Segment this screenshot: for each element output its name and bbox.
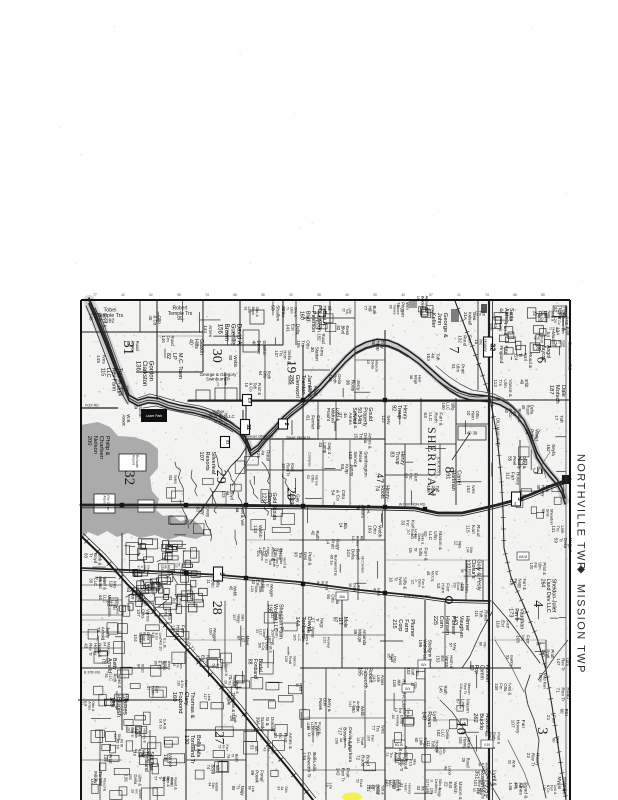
svg-text:Sauer Globe St: Sauer Globe St bbox=[247, 434, 274, 438]
svg-text:80: 80 bbox=[541, 293, 545, 297]
svg-text:VILLAGE: VILLAGE bbox=[189, 586, 193, 601]
svg-text:Beaumont Rd: Beaumont Rd bbox=[568, 342, 573, 370]
svg-text:ToftToft128: ToftToft128 bbox=[514, 783, 525, 789]
svg-text:B3 30: B3 30 bbox=[395, 743, 404, 747]
svg-text:II 30: II 30 bbox=[484, 743, 490, 747]
svg-text:DILLMAN HWY: DILLMAN HWY bbox=[496, 418, 501, 447]
svg-text:Sauer Globe N: Sauer Globe N bbox=[286, 435, 310, 439]
svg-text:52: 52 bbox=[245, 424, 251, 430]
svg-text:E 37th Rd: E 37th Rd bbox=[84, 670, 100, 674]
svg-text:Ives145: Ives145 bbox=[95, 355, 106, 365]
svg-text:2: 2 bbox=[283, 423, 289, 426]
svg-text:S.A.B.16 10: S.A.B.16 10 bbox=[158, 719, 167, 730]
svg-text:28: 28 bbox=[209, 601, 224, 615]
svg-text:Lazer Park: Lazer Park bbox=[146, 414, 163, 418]
svg-text:74: 74 bbox=[485, 293, 489, 297]
svg-text:10: 10 bbox=[453, 721, 468, 735]
svg-text:B/X: B/X bbox=[421, 663, 427, 667]
svg-text:W DIVISION RD: W DIVISION RD bbox=[399, 502, 426, 506]
svg-text:3: 3 bbox=[534, 727, 550, 735]
svg-text:Sills117: Sills117 bbox=[113, 734, 121, 741]
svg-text:31: 31 bbox=[225, 440, 230, 445]
svg-text:55: 55 bbox=[177, 293, 181, 297]
svg-text:42: 42 bbox=[121, 293, 125, 297]
svg-text:27: 27 bbox=[213, 731, 228, 745]
svg-text:43: 43 bbox=[401, 293, 405, 297]
svg-text:20: 20 bbox=[373, 293, 377, 297]
svg-text:SHERIDAN RD: SHERIDAN RD bbox=[404, 594, 430, 598]
svg-text:32: 32 bbox=[289, 293, 293, 297]
svg-text:30: 30 bbox=[209, 349, 224, 363]
svg-text:B/X: B/X bbox=[405, 687, 411, 691]
svg-text:Link117: Link117 bbox=[203, 694, 212, 701]
svg-text:74: 74 bbox=[205, 293, 209, 297]
svg-text:77: 77 bbox=[93, 293, 97, 297]
svg-text:5: 5 bbox=[531, 468, 546, 475]
svg-text:Sills144: Sills144 bbox=[465, 547, 473, 554]
svg-text:21: 21 bbox=[457, 293, 461, 297]
svg-text:45A: 45A bbox=[339, 595, 346, 599]
svg-text:47: 47 bbox=[375, 473, 385, 483]
svg-text:LinkLink118: LinkLink118 bbox=[133, 750, 146, 757]
svg-text:32: 32 bbox=[488, 343, 495, 351]
svg-text:Compau: Compau bbox=[307, 452, 311, 466]
svg-text:MISSION TWP: MISSION TWP bbox=[575, 584, 587, 674]
svg-text:40: 40 bbox=[345, 293, 349, 297]
svg-text:FOX RD: FOX RD bbox=[85, 403, 99, 407]
svg-text:E3: E3 bbox=[248, 398, 253, 404]
svg-text:68: 68 bbox=[513, 293, 517, 297]
svg-text:(CR.475): (CR.475) bbox=[436, 457, 441, 474]
svg-text:4: 4 bbox=[530, 600, 545, 607]
svg-text:68: 68 bbox=[233, 293, 237, 297]
svg-text:32: 32 bbox=[121, 470, 137, 485]
svg-text:57: 57 bbox=[429, 293, 433, 297]
svg-text:Ives124: Ives124 bbox=[108, 581, 117, 589]
svg-text:36: 36 bbox=[261, 293, 265, 297]
svg-text:WA M: WA M bbox=[519, 555, 528, 559]
svg-text:35: 35 bbox=[317, 293, 321, 297]
svg-text:Rd60: Rd60 bbox=[551, 738, 560, 743]
svg-text:SillsSills134: SillsSills134 bbox=[250, 586, 262, 593]
svg-text:52: 52 bbox=[149, 293, 153, 297]
svg-text:NORTHVILLE TWP: NORTHVILLE TWP bbox=[575, 454, 587, 571]
svg-text:7: 7 bbox=[446, 346, 461, 353]
